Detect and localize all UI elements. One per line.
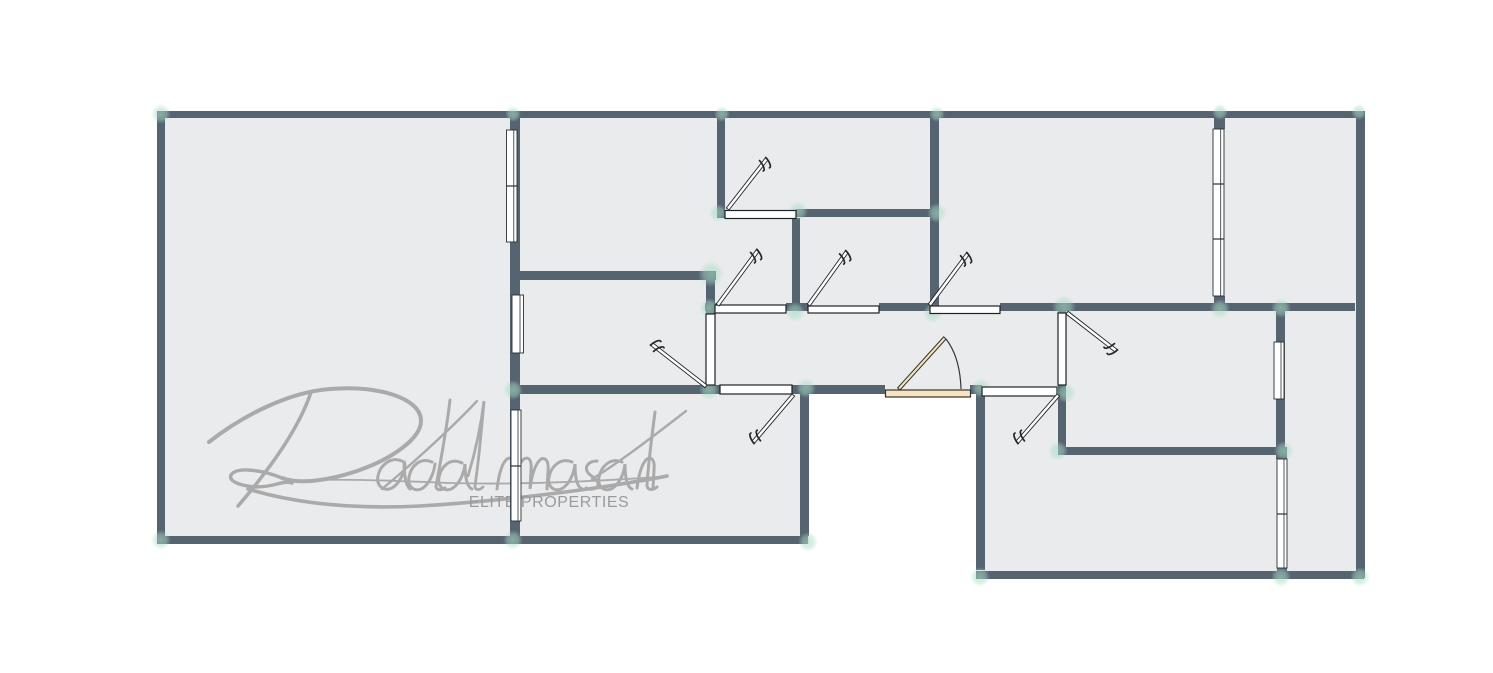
svg-text:ELITE PROPERTIES: ELITE PROPERTIES [469, 494, 630, 511]
